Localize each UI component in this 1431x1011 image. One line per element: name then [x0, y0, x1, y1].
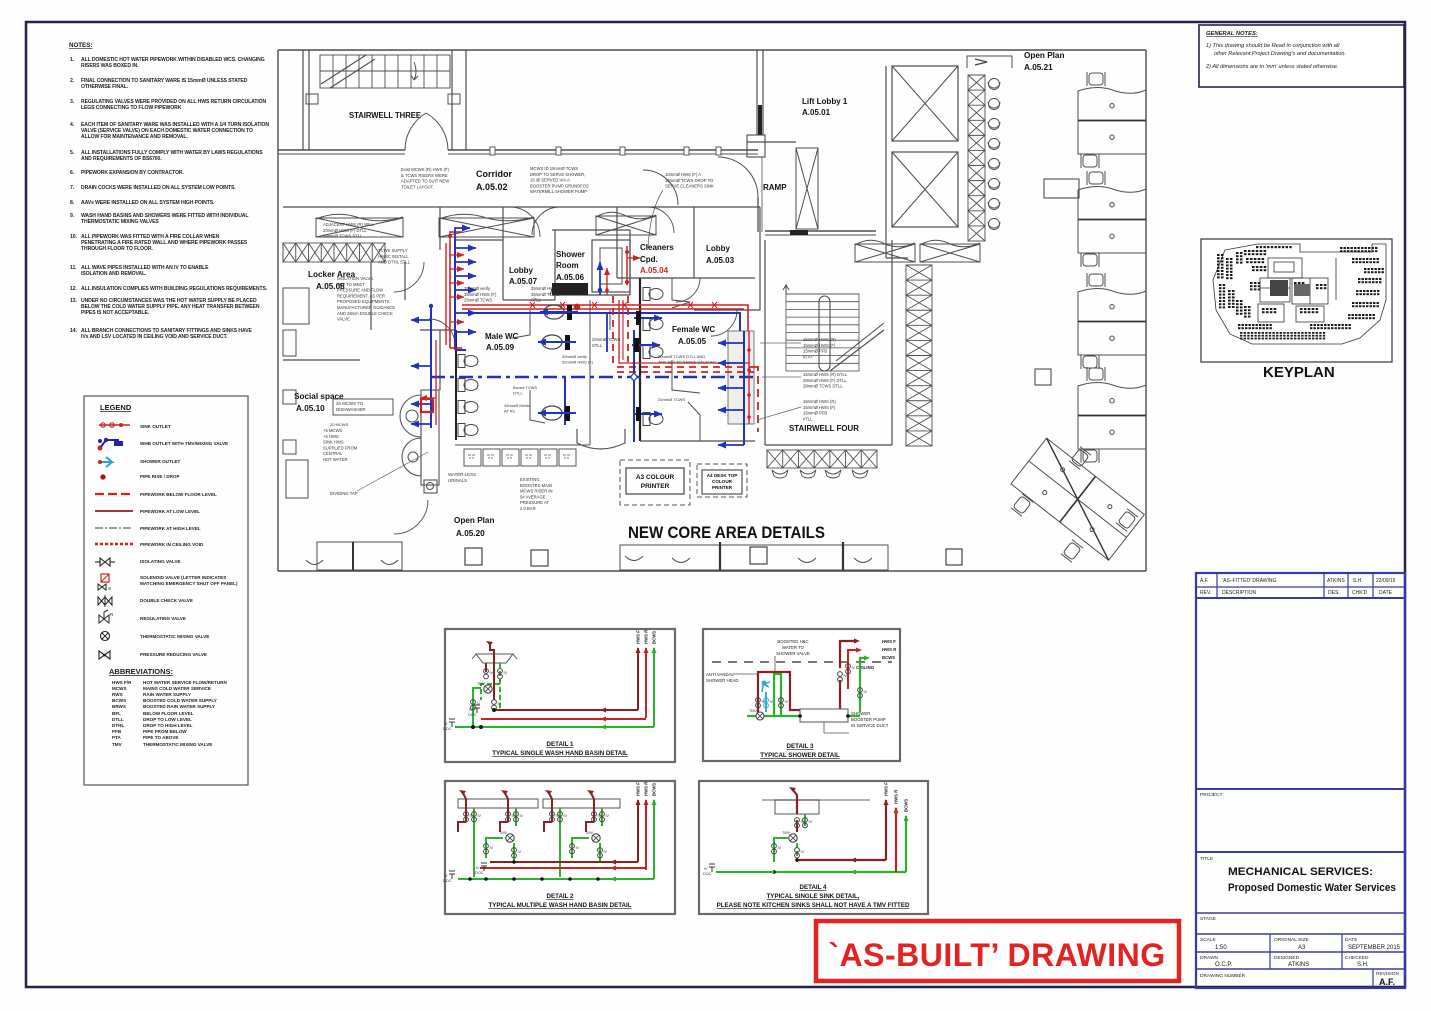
svg-text:28mmØ TCWS DTLL: 28mmØ TCWS DTLL — [803, 384, 843, 389]
svg-text:A.05.03: A.05.03 — [706, 256, 735, 265]
svg-text:HWS R: HWS R — [644, 781, 649, 796]
svg-text:IV: IV — [504, 671, 508, 675]
svg-text:STAGE: STAGE — [1200, 916, 1216, 922]
svg-text:BCWS: BCWS — [112, 698, 126, 703]
svg-text:PFB: PFB — [112, 729, 122, 734]
svg-text:O.C.P.: O.C.P. — [1215, 962, 1233, 968]
svg-text:DTLL: DTLL — [513, 391, 524, 396]
svg-text:PIPE FROM BELOW: PIPE FROM BELOW — [143, 729, 187, 734]
svg-text:20mmØ TCWS: 20mmØ TCWS — [592, 337, 621, 342]
svg-text:2.0 BAR: 2.0 BAR — [520, 506, 536, 511]
svg-text:TCWS SUPPLY: TCWS SUPPLY — [378, 248, 408, 253]
svg-text:11.: 11. — [70, 265, 77, 271]
svg-text:TMV: TMV — [749, 709, 757, 713]
svg-text:S.H.: S.H. — [1357, 962, 1369, 968]
svg-text:ADJACENT HWS (R) WILL: ADJACENT HWS (R) WILL — [323, 222, 375, 227]
svg-text:A.05.01: A.05.01 — [802, 108, 831, 117]
svg-text:SUPPLIED FROM: SUPPLIED FROM — [323, 445, 358, 450]
svg-text:ABBREVIATIONS:: ABBREVIATIONS: — [109, 667, 173, 676]
svg-text:PTA: PTA — [112, 735, 122, 740]
svg-text:20mmØ verify: 20mmØ verify — [562, 354, 587, 359]
svg-text:MECHANICAL SERVICES:: MECHANICAL SERVICES: — [1228, 866, 1373, 878]
svg-text:other Relevant Project Draw: other Relevant Project Drawing’s and doc… — [1214, 51, 1346, 57]
svg-text:THERMOSTATIC MIXING VALVE: THERMOSTATIC MIXING VALVE — [140, 634, 209, 639]
svg-text:ORIGINAL SIZE: ORIGINAL SIZE — [1274, 937, 1309, 943]
svg-text:REGULATING VALVE: REGULATING VALVE — [140, 616, 186, 621]
svg-text:15mmØ HWS (R): 15mmØ HWS (R) — [803, 399, 836, 404]
svg-text:Lobby: Lobby — [706, 244, 731, 253]
svg-text:PIPEWORK EXPANSION BY CONTRACT: PIPEWORK EXPANSION BY CONTRACTOR. — [81, 170, 185, 176]
svg-text:Lobby: Lobby — [509, 266, 534, 275]
svg-text:CENTRAL: CENTRAL — [323, 451, 343, 456]
svg-text:35mmØ HWS(F): 35mmØ HWS(F) — [531, 286, 563, 291]
svg-text:IV: IV — [476, 866, 480, 870]
svg-text:A3: A3 — [1298, 945, 1306, 951]
svg-text:DETAIL 3: DETAIL 3 — [787, 743, 814, 750]
svg-text:SINK OUTLET: SINK OUTLET — [140, 424, 171, 429]
svg-text:HWS F/R: HWS F/R — [112, 680, 132, 685]
svg-text:EXISTING: EXISTING — [520, 477, 540, 482]
svg-text:AND 28mm DOUBLE CHECK: AND 28mm DOUBLE CHECK — [337, 311, 393, 316]
svg-text:S.H.: S.H. — [1353, 578, 1363, 584]
svg-text:AAVs WERE INSTALLED ON ALL SYS: AAVs WERE INSTALLED ON ALL SYSTEM HIGH P… — [81, 200, 215, 206]
svg-text:HOT WATER: HOT WATER — [323, 457, 348, 462]
svg-text:PIPEWORK BELOW FLOOR LEVEL: PIPEWORK BELOW FLOOR LEVEL — [140, 492, 217, 497]
svg-text:Corridor: Corridor — [476, 169, 512, 179]
svg-text:DROP TO HIGH LEVEL: DROP TO HIGH LEVEL — [143, 723, 193, 728]
svg-text:15mmØ HWS (F): 15mmØ HWS (F) — [803, 405, 836, 410]
svg-text:15mmØ PFB: 15mmØ PFB — [803, 411, 827, 416]
svg-text:IVs AND LSV LOCATED IN CEILING: IVs AND LSV LOCATED IN CEILING VOID AND … — [81, 334, 228, 340]
svg-text:BCWS: BCWS — [904, 799, 909, 812]
svg-text:A.05.07: A.05.07 — [509, 277, 538, 286]
svg-text:DTHL: DTHL — [112, 723, 124, 728]
svg-text:IV: IV — [490, 671, 494, 675]
svg-text:DETAIL 1: DETAIL 1 — [547, 741, 574, 748]
svg-text:IV: IV — [576, 846, 580, 850]
svg-text:WATERMILL SHOWER PUMP: WATERMILL SHOWER PUMP — [530, 189, 587, 194]
svg-text:OTHERWISE FINAL.: OTHERWISE FINAL. — [81, 84, 129, 90]
svg-text:SOLENOID VALVE (LETTER INDICAT: SOLENOID VALVE (LETTER INDICATES — [140, 575, 226, 580]
svg-text:A.05.09: A.05.09 — [486, 343, 515, 352]
svg-text:A.05.02: A.05.02 — [476, 182, 508, 192]
svg-text:PIPEWORK AT HIGH LEVEL: PIPEWORK AT HIGH LEVEL — [140, 526, 201, 531]
svg-text:#TLL: #TLL — [803, 416, 813, 421]
svg-text:PIPEWORK AT LOW LEVEL: PIPEWORK AT LOW LEVEL — [140, 509, 200, 514]
svg-text:20mmØ HWS (F) DTLL: 20mmØ HWS (F) DTLL — [323, 228, 367, 233]
svg-text:DIVIDING TAP: DIVIDING TAP — [330, 491, 358, 496]
svg-text:TMV: TMV — [112, 742, 123, 747]
svg-text:28mmØ TCWS STLL: 28mmØ TCWS STLL — [323, 234, 363, 239]
svg-text:IV: IV — [785, 700, 789, 704]
svg-text:PRESSURE AND FLOW: PRESSURE AND FLOW — [337, 288, 383, 293]
svg-text:#TA+: #TA+ — [803, 354, 813, 359]
svg-text:SHOWER VALVE: SHOWER VALVE — [776, 651, 810, 656]
svg-text:IV: IV — [704, 867, 708, 871]
svg-text:NEW CORE AREA DETAILS: NEW CORE AREA DETAILS — [628, 523, 825, 542]
svg-text:A.05.04: A.05.04 — [640, 266, 669, 275]
svg-text:PIPEWORK IN CEILING VOID: PIPEWORK IN CEILING VOID — [140, 542, 204, 547]
svg-text:SHOWER OUTLET: SHOWER OUTLET — [140, 459, 181, 464]
svg-text:DESCRIPTION: DESCRIPTION — [1222, 590, 1257, 596]
svg-text:DATE: DATE — [1379, 590, 1393, 596]
svg-text:BFL: BFL — [112, 711, 121, 716]
svg-text:HWS R: HWS R — [894, 789, 899, 804]
svg-text:REQUIREMENT, AS PER: REQUIREMENT, AS PER — [337, 293, 385, 298]
svg-text:A.05.21: A.05.21 — [1024, 63, 1053, 72]
svg-text:BOOSTER PUMP GRUNDFOS: BOOSTER PUMP GRUNDFOS — [530, 183, 589, 188]
svg-text:DATE: DATE — [1345, 937, 1357, 943]
svg-text:Exist MCWS (R) HWS (F): Exist MCWS (R) HWS (F) — [401, 167, 450, 172]
svg-text:TOILET LAYOUT.: TOILET LAYOUT. — [401, 184, 434, 189]
svg-text:TITLE: TITLE — [1200, 856, 1213, 862]
svg-text:IV: IV — [564, 814, 568, 818]
svg-text:STAIRWELL THREE: STAIRWELL THREE — [349, 111, 421, 120]
svg-text:STAIRWELL FOUR: STAIRWELL FOUR — [789, 424, 859, 433]
svg-text:KEYPLAN: KEYPLAN — [1263, 364, 1335, 381]
svg-text:IV: IV — [778, 846, 782, 850]
svg-text:DETAIL 2: DETAIL 2 — [547, 893, 574, 900]
svg-text:TYPICAL SINGLE SINK DETAIL,: TYPICAL SINGLE SINK DETAIL, — [767, 893, 860, 900]
svg-text:7.: 7. — [70, 185, 75, 191]
svg-text:HOT WATER SERVICE FLOW/RETURN: HOT WATER SERVICE FLOW/RETURN — [143, 680, 227, 685]
svg-text:BELOW FLOOR LEVEL: BELOW FLOOR LEVEL — [143, 711, 194, 716]
svg-text:SINK HWS: SINK HWS — [323, 440, 344, 445]
svg-text:PIPE TO ABOVE: PIPE TO ABOVE — [143, 735, 178, 740]
svg-text:PROJECT: PROJECT — [1200, 792, 1222, 798]
svg-text:5.: 5. — [70, 150, 75, 156]
svg-text:IV: IV — [498, 702, 502, 706]
svg-text:TMV: TMV — [585, 831, 593, 835]
svg-text:DES.: DES. — [1328, 590, 1340, 596]
svg-text:15mmØ TCWS DROP TO: 15mmØ TCWS DROP TO — [665, 178, 714, 183]
svg-text:15mmØ HWS (R) DTLL: 15mmØ HWS (R) DTLL — [803, 372, 848, 377]
svg-text:VALVE: VALVE — [337, 317, 350, 322]
svg-text:S: S — [108, 586, 111, 591]
svg-text:DRAWING NUMBER: DRAWING NUMBER — [1200, 973, 1246, 979]
svg-text:A.05.05: A.05.05 — [678, 337, 707, 346]
svg-text:+5 MCWS: +5 MCWS — [323, 428, 342, 433]
svg-text:A3 COLOUR: A3 COLOUR — [636, 474, 675, 481]
svg-text:A.05.10: A.05.10 — [296, 404, 325, 413]
svg-text:IV: IV — [801, 850, 805, 854]
svg-text:‘AS–FITTED’ DRAWING: ‘AS–FITTED’ DRAWING — [1222, 578, 1276, 584]
svg-text:10.: 10. — [70, 234, 77, 240]
svg-text:DOUBLE CHECK VALVE: DOUBLE CHECK VALVE — [140, 598, 193, 603]
svg-text:DOC: DOC — [475, 871, 484, 875]
svg-text:SET TO MEET: SET TO MEET — [337, 282, 365, 287]
svg-text:15 @ SERVED VIA A: 15 @ SERVED VIA A — [530, 178, 570, 183]
svg-text:HWS F: HWS F — [884, 782, 889, 796]
svg-text:CEILING: CEILING — [856, 665, 875, 670]
svg-text:5# AVERAGE: 5# AVERAGE — [520, 494, 546, 499]
svg-text:Proposed Domestic Water Servic: Proposed Domestic Water Services — [1228, 882, 1396, 894]
svg-text:3.: 3. — [70, 99, 75, 105]
svg-text:WHB OUTLET WITH TMV/MIXING VAL: WHB OUTLET WITH TMV/MIXING VALVE — [140, 441, 228, 446]
svg-text:PIPE RISE / DROP: PIPE RISE / DROP — [140, 474, 180, 479]
svg-text:AT #S: AT #S — [504, 409, 515, 414]
svg-text:Cleaners: Cleaners — [640, 243, 674, 252]
svg-text:DETAIL 4: DETAIL 4 — [800, 884, 827, 891]
svg-text:PRINTER: PRINTER — [641, 483, 670, 490]
svg-text:TMV: TMV — [782, 831, 790, 835]
svg-text:2) All dimensions are in: 2) All dimensions are in ‘mm’ unless sta… — [1205, 64, 1339, 70]
svg-text:PRESSURE AT: PRESSURE AT — [520, 500, 549, 505]
svg-text:15mmØ HWS (F): 15mmØ HWS (F) — [803, 343, 836, 348]
svg-text:BCWS: BCWS — [882, 655, 895, 660]
svg-text:Female WC: Female WC — [672, 325, 715, 334]
svg-text:9.: 9. — [70, 213, 75, 219]
svg-text:15mmØ PFB: 15mmØ PFB — [803, 349, 827, 354]
svg-text:THERMOSTATIC MIXING VALVE: THERMOSTATIC MIXING VALVE — [143, 742, 212, 747]
svg-text:BOOSTER PUMP: BOOSTER PUMP — [851, 717, 886, 722]
svg-text:GENERAL NOTES:: GENERAL NOTES: — [1206, 31, 1258, 37]
svg-text:IV: IV — [469, 708, 473, 712]
svg-text:ANTI VANDAL: ANTI VANDAL — [706, 672, 734, 677]
svg-text:AND REQUIREMENTS OF BS6700.: AND REQUIREMENTS OF BS6700. — [81, 156, 162, 162]
svg-text:IV: IV — [809, 820, 813, 824]
svg-text:AND DTHL STLL: AND DTHL STLL — [378, 260, 411, 265]
svg-text:TMV SET TO SERVE EACH WC: TMV SET TO SERVE EACH WC — [658, 360, 716, 365]
svg-text:SCALE: SCALE — [1200, 937, 1216, 943]
svg-text:25mmØ TCWS: 25mmØ TCWS — [464, 298, 493, 303]
svg-text:RAIN WATER SUPPLY: RAIN WATER SUPPLY — [143, 692, 191, 697]
svg-text:IV: IV — [604, 850, 608, 854]
svg-text:CHECKED: CHECKED — [1345, 955, 1369, 961]
svg-text:ADAPTED TO SUIT NEW: ADAPTED TO SUIT NEW — [401, 179, 449, 184]
svg-text:1:50: 1:50 — [1215, 945, 1227, 951]
svg-text:WATER-LESS: WATER-LESS — [448, 472, 476, 477]
svg-text:28mmØ HWS (F) DTLL: 28mmØ HWS (F) DTLL — [803, 378, 847, 383]
svg-text:BRWS: BRWS — [112, 704, 126, 709]
svg-text:12.: 12. — [70, 286, 77, 292]
svg-text:LEGEND: LEGEND — [100, 403, 132, 412]
svg-text:ATKINS: ATKINS — [1288, 962, 1309, 968]
svg-text:IV: IV — [444, 722, 448, 726]
svg-text:Room: Room — [556, 261, 579, 270]
svg-text:IV: IV — [770, 700, 774, 704]
svg-text:TYPICAL MULTIPLE WASH HAND BAS: TYPICAL MULTIPLE WASH HAND BASIN DETAIL — [489, 902, 632, 909]
svg-text:Shower: Shower — [556, 250, 585, 259]
svg-text:35mmØ verify: 35mmØ verify — [464, 286, 491, 291]
svg-text:& TCWS RISERS WERE: & TCWS RISERS WERE — [401, 173, 448, 178]
svg-text:14.: 14. — [70, 328, 77, 334]
svg-text:TYPICAL SINGLE WASH HAND BASIN: TYPICAL SINGLE WASH HAND BASIN DETAIL — [492, 750, 628, 757]
svg-text:Open Plan: Open Plan — [1024, 51, 1065, 60]
svg-text:MATCHING EMERGENCY SHUT OFF PA: MATCHING EMERGENCY SHUT OFF PANEL) — [140, 581, 238, 586]
svg-text:20 MCWS: 20 MCWS — [330, 422, 349, 427]
svg-text:PRINTER: PRINTER — [712, 485, 733, 490]
svg-text:MCWS ID 15mmØ TCWS: MCWS ID 15mmØ TCWS — [530, 166, 578, 171]
svg-text:MCWS: MCWS — [112, 686, 127, 691]
svg-text:A.F.: A.F. — [1379, 977, 1395, 987]
svg-text:6.: 6. — [70, 170, 75, 176]
svg-text:Male WC: Male WC — [485, 332, 519, 341]
svg-text:2.: 2. — [70, 78, 75, 84]
svg-text:DOC: DOC — [468, 713, 477, 717]
svg-text:ALLOW FOR MAINTENANCE AND R: ALLOW FOR MAINTENANCE AND REMOVAL. — [81, 134, 188, 140]
svg-text:ISOLATION AND REMOVAL.: ISOLATION AND REMOVAL. — [81, 271, 147, 277]
svg-text:DROP TO LOW LEVEL: DROP TO LOW LEVEL — [143, 717, 192, 722]
svg-text:13.: 13. — [70, 298, 77, 304]
svg-text:RAMP: RAMP — [763, 183, 787, 192]
svg-text:SHOWER: SHOWER — [851, 711, 870, 716]
svg-text:URINALS: URINALS — [448, 478, 467, 483]
svg-text:A4 DESK TOP: A4 DESK TOP — [707, 473, 738, 478]
svg-text:Lift Lobby 1: Lift Lobby 1 — [802, 97, 848, 106]
svg-text:45mmØ Mchtv: 45mmØ Mchtv — [504, 403, 530, 408]
svg-text:10mmØ HWS (F) A: 10mmØ HWS (F) A — [665, 172, 701, 177]
svg-text:RISERS WAS BOXED IN.: RISERS WAS BOXED IN. — [81, 63, 139, 69]
svg-text:`AS-BUILT’ DRAWING: `AS-BUILT’ DRAWING — [828, 937, 1165, 973]
svg-text:DOC: DOC — [703, 872, 712, 876]
svg-text:+5 HWS: +5 HWS — [323, 434, 339, 439]
svg-text:8.: 8. — [70, 200, 75, 206]
svg-text:SEPTEMBER 2015: SEPTEMBER 2015 — [1348, 945, 1401, 951]
svg-text:REV.: REV. — [1200, 590, 1211, 596]
svg-text:IV: IV — [852, 666, 856, 670]
svg-text:STLL: STLL — [531, 298, 542, 303]
svg-text:15mmØ HWS (R): 15mmØ HWS (R) — [803, 337, 836, 342]
svg-text:RWS: RWS — [112, 692, 123, 697]
svg-text:DRAWN: DRAWN — [1200, 955, 1218, 961]
svg-text:TYPICAL SHOWER DETAIL: TYPICAL SHOWER DETAIL — [760, 752, 840, 759]
svg-text:DTLL: DTLL — [112, 717, 124, 722]
svg-text:A.05.20: A.05.20 — [456, 529, 485, 538]
svg-text:IV: IV — [844, 674, 848, 678]
svg-text:MCWS RISER IN: MCWS RISER IN — [520, 489, 553, 494]
svg-text:HWS F: HWS F — [882, 639, 896, 644]
svg-text:IV: IV — [444, 874, 448, 878]
svg-text:IN SERVICE DUCT: IN SERVICE DUCT — [851, 723, 889, 728]
svg-text:22/09/15: 22/09/15 — [1376, 578, 1396, 584]
svg-text:4.: 4. — [70, 122, 75, 128]
svg-text:DRAIN COCKS WERE INSTALLED ON: DRAIN COCKS WERE INSTALLED ON ALL SYSTEM… — [81, 185, 236, 191]
svg-text:WATER TO: WATER TO — [782, 645, 805, 650]
svg-text:THROUGH FLOOR TO FLOOR.: THROUGH FLOOR TO FLOOR. — [81, 246, 153, 252]
svg-text:ALL INSULATION COMPLIES WITH: ALL INSULATION COMPLIES WITH BUILDING RE… — [81, 286, 268, 292]
svg-text:MANUFACTURER GUIDANCE: MANUFACTURER GUIDANCE — [337, 305, 395, 310]
svg-text:PLEASE NOTE KITCHEN SINKS SHAL: PLEASE NOTE KITCHEN SINKS SHALL NOT HAVE… — [717, 902, 910, 909]
svg-text:ATKINS: ATKINS — [1327, 578, 1345, 584]
svg-text:DOC: DOC — [443, 727, 452, 731]
svg-text:BCWS: BCWS — [652, 783, 657, 796]
svg-text:NOTES:: NOTES: — [69, 42, 92, 49]
svg-text:Cpd.: Cpd. — [640, 255, 658, 264]
svg-text:BOOSTED H&C: BOOSTED H&C — [777, 639, 808, 644]
svg-text:HWS R: HWS R — [644, 629, 649, 644]
svg-text:COLOUR: COLOUR — [712, 479, 733, 484]
svg-text:Boxed TCWS: Boxed TCWS — [513, 385, 537, 390]
svg-text:CHK’D: CHK’D — [1352, 590, 1368, 596]
svg-text:TMV: TMV — [499, 831, 507, 835]
svg-text:ISOLATION VALVE,: ISOLATION VALVE, — [337, 276, 374, 281]
svg-text:IV: IV — [864, 690, 868, 694]
svg-text:DOC: DOC — [443, 879, 452, 883]
svg-text:1.: 1. — [70, 57, 75, 63]
svg-text:IV: IV — [518, 850, 522, 854]
svg-text:35mmØ HWS (F): 35mmØ HWS (F) — [464, 292, 497, 297]
svg-text:THERMOSTATIC MIXING VALVES: THERMOSTATIC MIXING VALVES — [81, 219, 159, 225]
svg-text:DISHWASHER: DISHWASHER — [336, 407, 366, 412]
svg-text:IV: IV — [606, 814, 610, 818]
svg-text:DESIGNED: DESIGNED — [1274, 955, 1300, 961]
svg-text:20mmØ TCWS: 20mmØ TCWS — [658, 397, 685, 402]
svg-text:20mmØ TCWS DTLL AND: 20mmØ TCWS DTLL AND — [658, 354, 705, 359]
svg-text:IV: IV — [490, 846, 494, 850]
svg-text:A.05.06: A.05.06 — [556, 273, 585, 282]
svg-text:BOOSTED RAIN WATER SUPPLY: BOOSTED RAIN WATER SUPPLY — [143, 704, 215, 709]
svg-text:20mmØ HWS (F): 20mmØ HWS (F) — [562, 360, 594, 365]
svg-text:STLL: STLL — [592, 343, 603, 348]
svg-text:PROPOSED EQUIPMENTS: PROPOSED EQUIPMENTS — [337, 299, 390, 304]
svg-text:HWS R: HWS R — [882, 647, 897, 652]
svg-text:Social space: Social space — [294, 392, 344, 401]
svg-text:BCWS: BCWS — [652, 631, 657, 644]
svg-text:HWSC INSTALL: HWSC INSTALL — [378, 254, 409, 259]
svg-text:MAINS COLD WATER SERVICE: MAINS COLD WATER SERVICE — [143, 686, 211, 691]
svg-text:A.F.: A.F. — [1200, 578, 1209, 584]
svg-text:PRESSURE REDUCING VALVE: PRESSURE REDUCING VALVE — [140, 652, 207, 657]
svg-text:IV: IV — [520, 814, 524, 818]
svg-text:BOOSTED COLD WATER SUPPLY: BOOSTED COLD WATER SUPPLY — [143, 698, 217, 703]
svg-text:BOOSTED MAIN: BOOSTED MAIN — [520, 483, 552, 488]
svg-text:TMV: TMV — [477, 682, 485, 686]
svg-text:HWS F: HWS F — [636, 782, 641, 796]
svg-text:PIPES IS NOT ACCEPTABLE.: PIPES IS NOT ACCEPTABLE. — [81, 310, 150, 316]
svg-text:20 MCWS TO: 20 MCWS TO — [336, 401, 364, 406]
svg-text:Open Plan: Open Plan — [454, 516, 495, 525]
svg-text:DROP TO SERVE SHOWER,: DROP TO SERVE SHOWER, — [530, 172, 585, 177]
svg-text:1) This drawing should be: 1) This drawing should be Read in conjun… — [1206, 43, 1340, 49]
svg-text:LEGS CONNECTING TO FLOW PIPEWO: LEGS CONNECTING TO FLOW PIPEWORK — [81, 105, 182, 111]
svg-text:HWS F: HWS F — [636, 630, 641, 644]
svg-text:35mmØ TCWS: 35mmØ TCWS — [531, 292, 560, 297]
svg-text:ISOLATING VALVE: ISOLATING VALVE — [140, 559, 181, 564]
svg-text:SHOWER HEAD: SHOWER HEAD — [706, 678, 738, 683]
svg-text:IV: IV — [478, 814, 482, 818]
